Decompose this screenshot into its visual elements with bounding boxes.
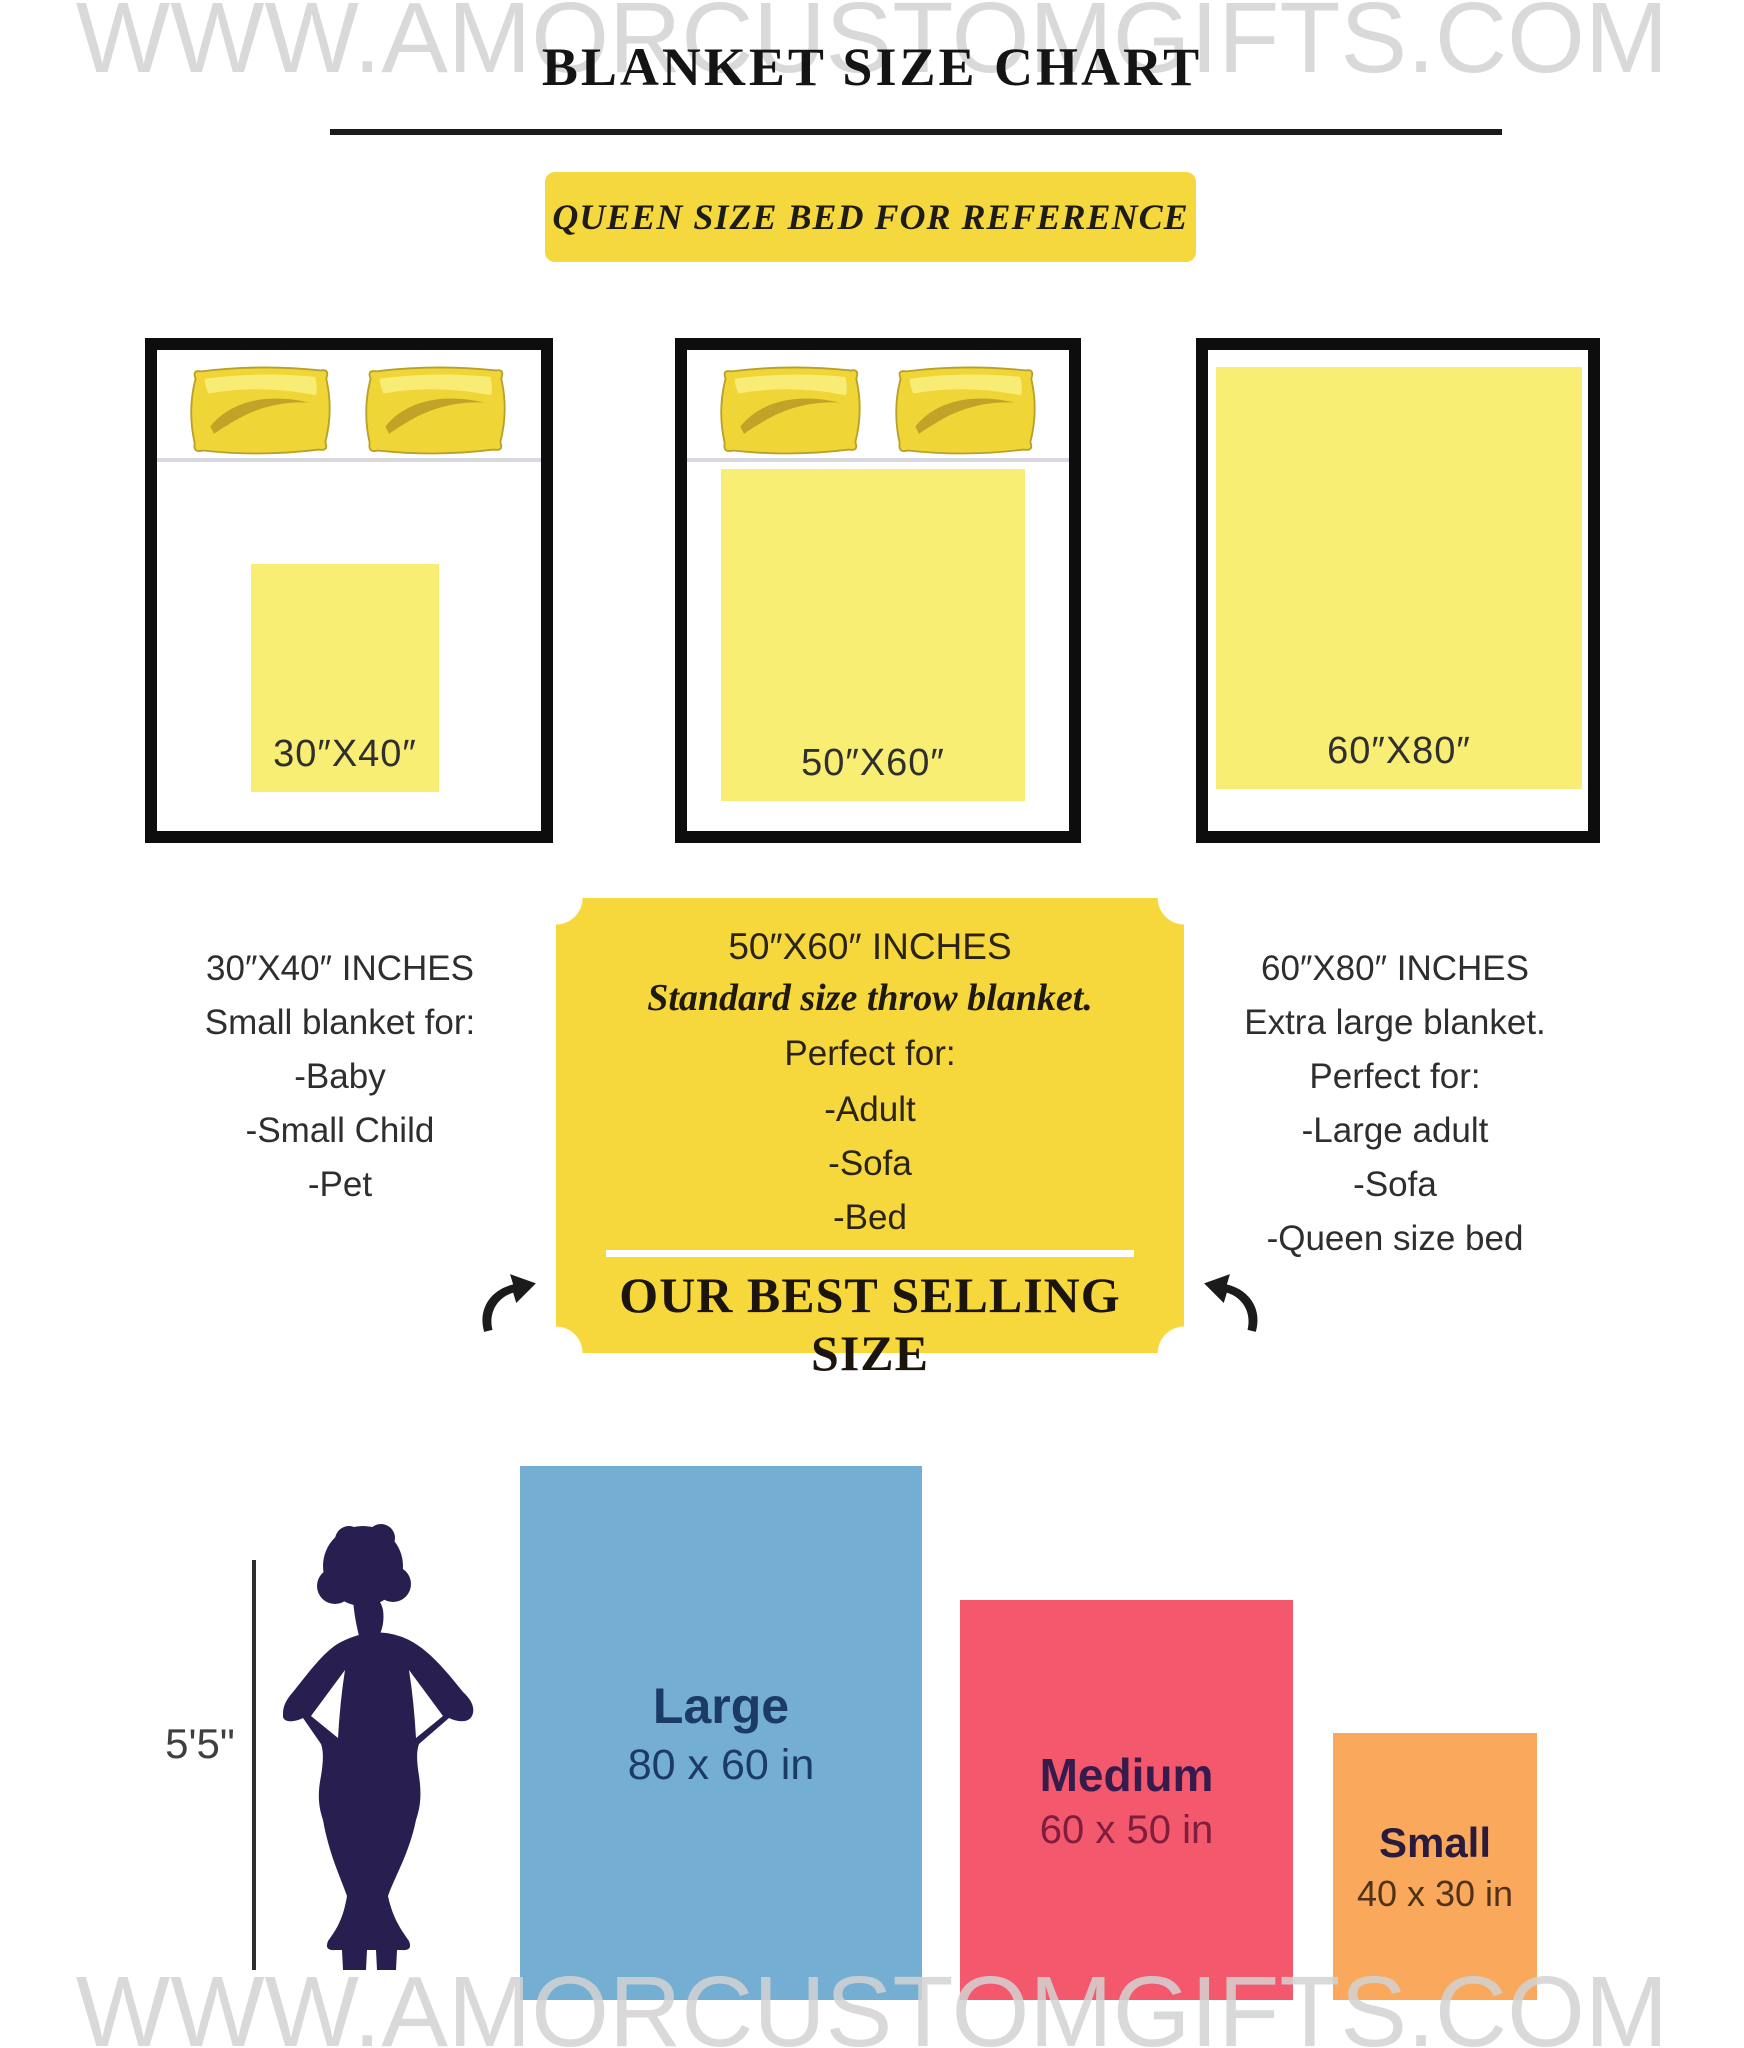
pillow-icon — [360, 364, 510, 456]
use-item: -Large adult — [1180, 1104, 1610, 1158]
size-name: Medium — [1040, 1748, 1214, 1802]
bed-diagram-large: 60″X80″ — [1196, 338, 1600, 843]
pillow-icon — [890, 364, 1040, 456]
description-xl-blanket: 60″X80″ INCHES Extra large blanket. Perf… — [1180, 942, 1610, 1266]
ticket-divider — [606, 1250, 1134, 1257]
curved-arrow-right-icon — [478, 1272, 540, 1334]
size-rect-small: Small 40 x 30 in — [1333, 1733, 1537, 2000]
size-title: 30″X40″ INCHES — [130, 942, 550, 996]
use-item: -Sofa — [1180, 1158, 1610, 1212]
bed-sheet-line — [687, 458, 1069, 462]
blanket-size-chart-infographic: WWW.AMORCUSTOMGIFTS.COM WWW.AMORCUSTOMGI… — [0, 0, 1744, 2048]
reference-banner: QUEEN SIZE BED FOR REFERENCE — [545, 172, 1196, 262]
size-rect-large: Large 80 x 60 in — [520, 1466, 922, 2000]
curved-arrow-left-icon — [1200, 1272, 1262, 1334]
best-selling-ticket: 50″X60″ INCHES Standard size throw blank… — [556, 898, 1184, 1353]
woman-silhouette — [283, 1523, 483, 1975]
size-name: Large — [653, 1677, 789, 1735]
bed-diagram-medium: 50″X60″ — [675, 338, 1081, 843]
size-title: 60″X80″ INCHES — [1180, 942, 1610, 996]
use-item: -Sofa — [556, 1144, 1184, 1184]
pillow-icon — [715, 364, 865, 456]
size-subtitle: Small blanket for: — [130, 996, 550, 1050]
perfect-for-label: Perfect for: — [556, 1034, 1184, 1074]
best-selling-label: OUR BEST SELLING SIZE — [556, 1266, 1184, 1382]
use-item: -Adult — [556, 1090, 1184, 1130]
blanket-size-label: 60″X80″ — [1327, 730, 1471, 789]
use-item: -Bed — [556, 1198, 1184, 1238]
use-item: -Baby — [130, 1050, 550, 1104]
size-name: Small — [1379, 1819, 1491, 1867]
title-underline — [330, 129, 1502, 135]
blanket-size-label: 50″X60″ — [801, 742, 945, 801]
perfect-for-label: Perfect for: — [1180, 1050, 1610, 1104]
blanket-30x40: 30″X40″ — [251, 564, 439, 792]
reference-banner-label: QUEEN SIZE BED FOR REFERENCE — [552, 196, 1188, 238]
bed-sheet-line — [157, 458, 541, 462]
size-rect-medium: Medium 60 x 50 in — [960, 1600, 1293, 2000]
blanket-50x60: 50″X60″ — [721, 469, 1025, 801]
blanket-size-label: 30″X40″ — [273, 733, 417, 792]
page-title: BLANKET SIZE CHART — [0, 36, 1744, 98]
bed-diagram-small: 30″X40″ — [145, 338, 553, 843]
description-small-blanket: 30″X40″ INCHES Small blanket for: -Baby … — [130, 942, 550, 1212]
size-subtitle: Standard size throw blanket. — [556, 976, 1184, 1020]
size-title: 50″X60″ INCHES — [556, 926, 1184, 968]
use-item: -Pet — [130, 1158, 550, 1212]
size-subtitle: Extra large blanket. — [1180, 996, 1610, 1050]
use-item: -Queen size bed — [1180, 1212, 1610, 1266]
height-label: 5'5" — [140, 1720, 260, 1768]
size-dimensions: 40 x 30 in — [1357, 1873, 1513, 1915]
pillow-icon — [185, 364, 335, 456]
size-dimensions: 60 x 50 in — [1040, 1808, 1213, 1853]
size-dimensions: 80 x 60 in — [628, 1741, 814, 1790]
blanket-60x80: 60″X80″ — [1216, 367, 1582, 789]
use-item: -Small Child — [130, 1104, 550, 1158]
